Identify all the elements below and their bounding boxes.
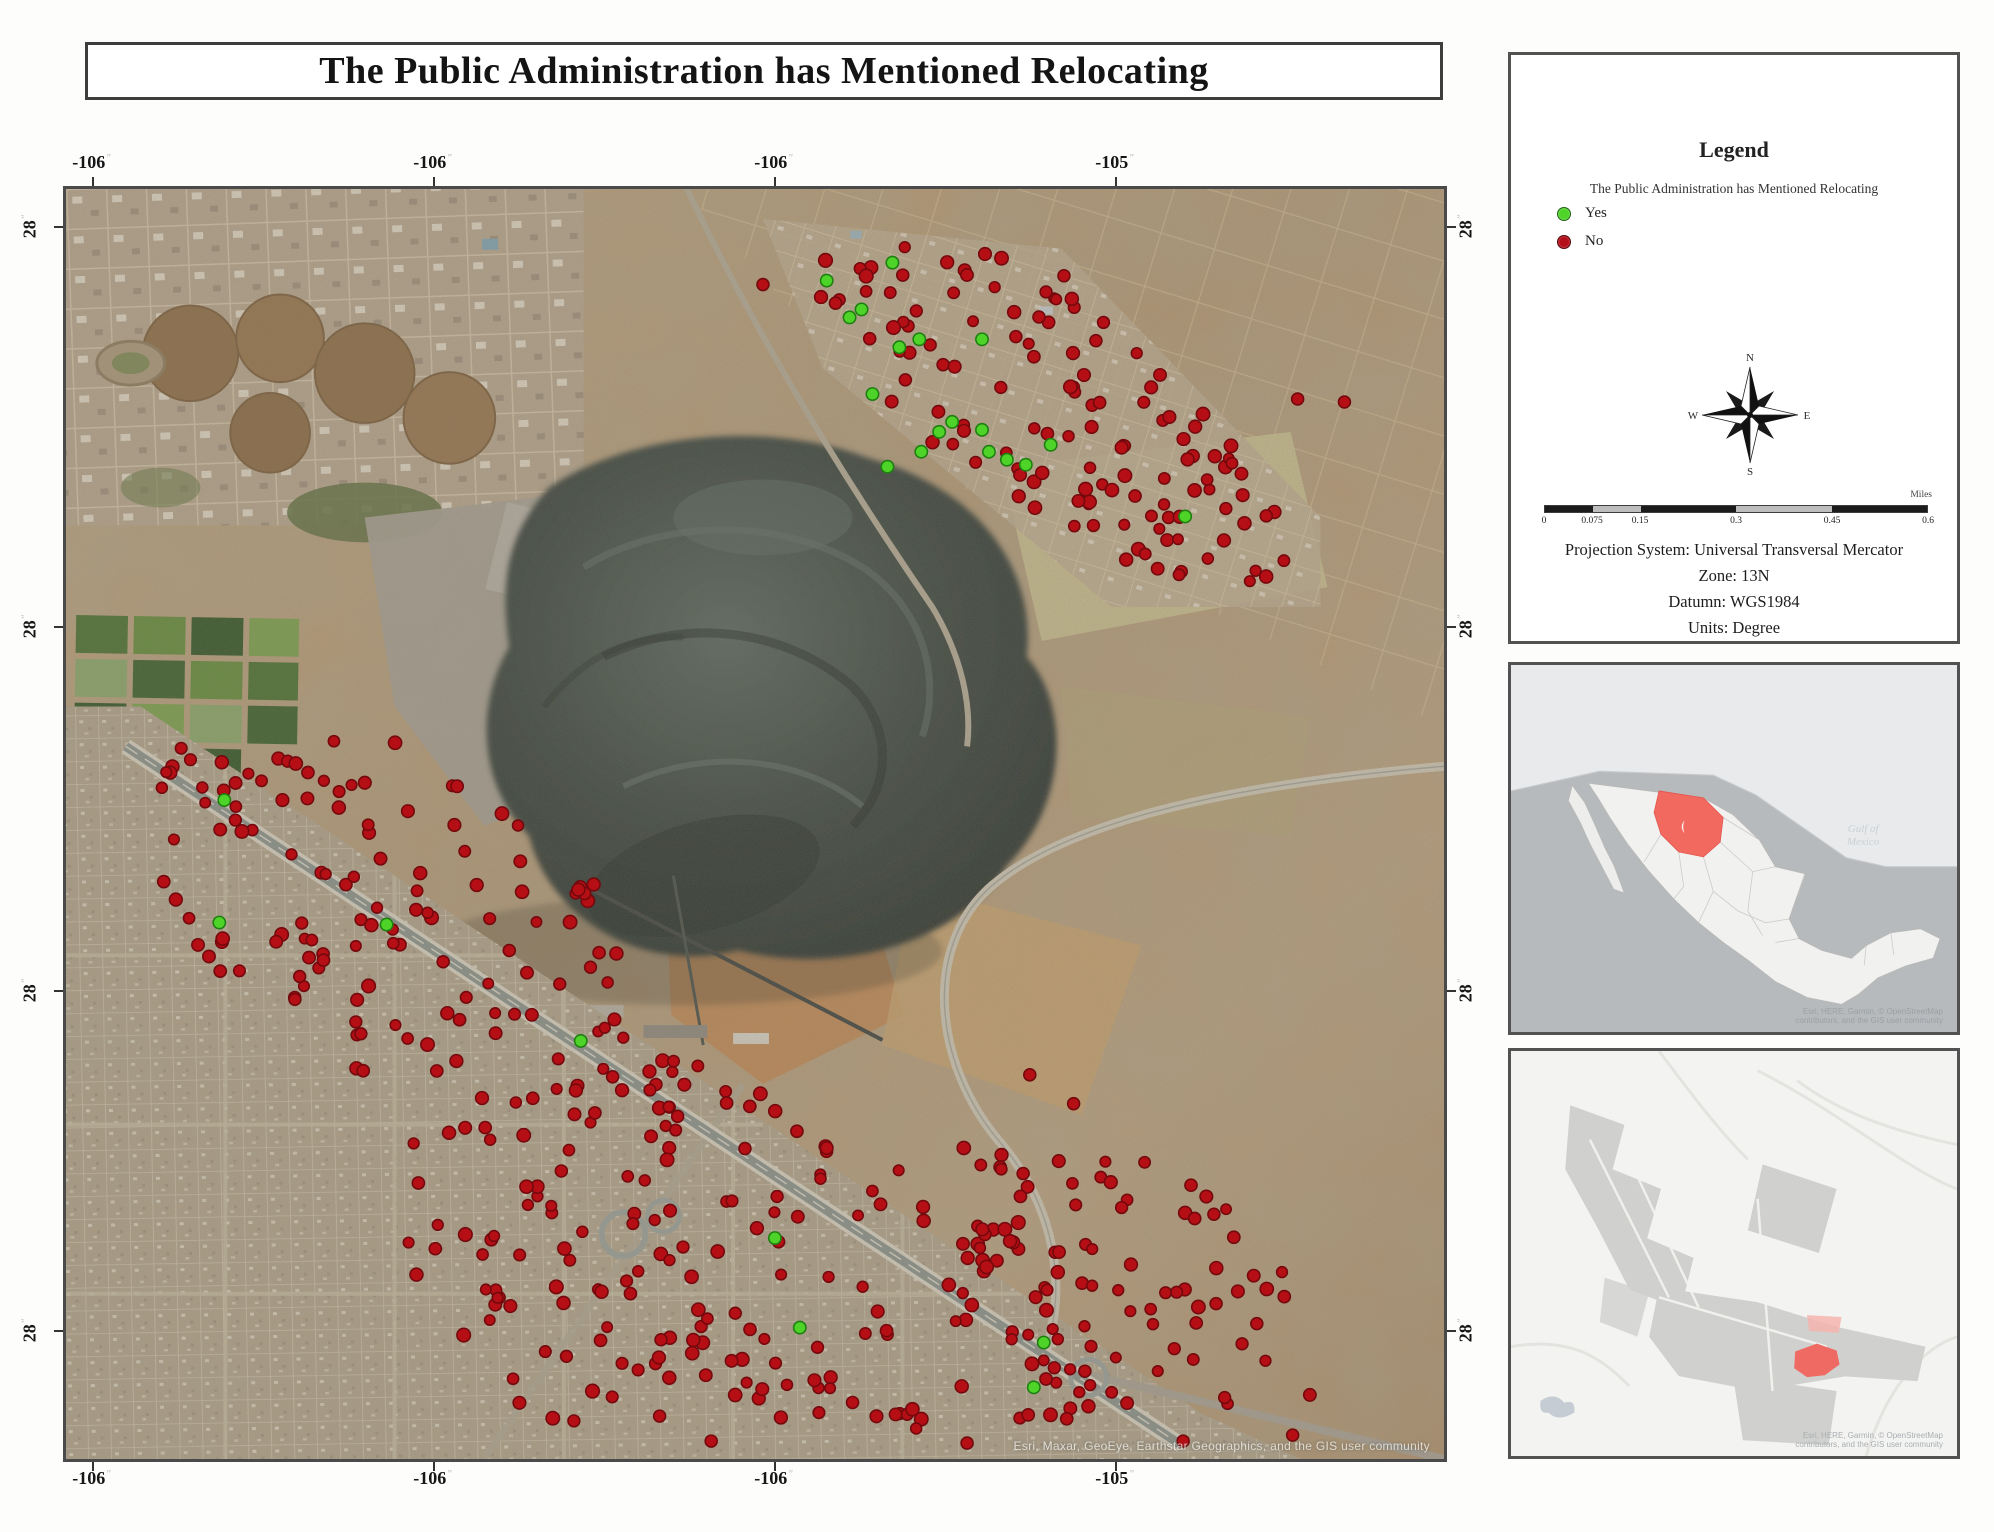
- survey-dot: [1025, 1357, 1038, 1370]
- survey-dot: [1232, 1285, 1245, 1298]
- survey-dot: [975, 1159, 986, 1170]
- longitude-label-top-1: -106″: [413, 152, 453, 173]
- survey-dot: [965, 1298, 978, 1311]
- survey-dot: [729, 1307, 741, 1319]
- survey-dot: [421, 1038, 434, 1051]
- survey-dot: [1210, 1262, 1223, 1275]
- survey-dot: [1146, 510, 1157, 521]
- survey-dot: [289, 994, 301, 1006]
- axis-tick: [92, 1462, 94, 1471]
- survey-dot: [1061, 1413, 1073, 1425]
- survey-dot: [585, 961, 597, 973]
- survey-dot: [1226, 458, 1237, 469]
- survey-dot: [1179, 510, 1191, 522]
- survey-dot: [1125, 1258, 1138, 1271]
- survey-dot: [513, 820, 524, 831]
- survey-dot: [995, 382, 1007, 394]
- legend-item-no: No: [1557, 233, 1603, 250]
- survey-dot: [374, 852, 386, 864]
- survey-dot: [513, 1396, 526, 1409]
- survey-dot: [526, 1009, 538, 1021]
- survey-dot: [791, 1125, 803, 1137]
- survey-dot: [459, 1228, 473, 1242]
- survey-dot: [843, 311, 855, 323]
- figure-title-box: The Public Administration has Mentioned …: [85, 42, 1443, 100]
- yes-dot-icon: [1557, 207, 1571, 221]
- survey-dot: [751, 1222, 764, 1235]
- survey-dot: [410, 904, 423, 917]
- svg-text:S: S: [1747, 466, 1753, 477]
- survey-dot: [627, 1218, 639, 1230]
- latitude-label-right-3: 28″: [1456, 1318, 1477, 1343]
- survey-dot: [632, 1364, 644, 1376]
- survey-dot: [319, 775, 330, 786]
- survey-dot: [1010, 331, 1022, 343]
- survey-dot: [624, 1288, 636, 1300]
- survey-dot: [1072, 495, 1084, 507]
- survey-dot: [1210, 1298, 1222, 1310]
- survey-dot: [422, 907, 433, 918]
- survey-dot: [649, 1215, 660, 1226]
- survey-dot: [357, 1065, 369, 1077]
- survey-dot: [955, 1380, 968, 1393]
- survey-dot: [523, 1200, 534, 1211]
- survey-dot: [507, 1373, 518, 1384]
- survey-dot: [203, 950, 215, 962]
- latitude-label-left-0: 28″: [20, 214, 41, 239]
- survey-dot: [776, 1269, 787, 1280]
- survey-dot: [351, 994, 364, 1007]
- survey-dot: [388, 736, 401, 749]
- survey-dot: [546, 1412, 559, 1425]
- survey-dot: [1168, 1343, 1180, 1355]
- survey-dot: [951, 1316, 961, 1326]
- survey-dot: [1145, 1304, 1156, 1315]
- survey-dot: [672, 1110, 684, 1122]
- survey-dot: [1105, 484, 1118, 497]
- survey-dot: [1236, 489, 1249, 502]
- survey-dot: [552, 1053, 564, 1065]
- survey-dot: [158, 876, 170, 888]
- survey-dot: [1088, 520, 1100, 532]
- survey-dot: [678, 1078, 691, 1091]
- scale-segment: [1593, 506, 1641, 512]
- survey-dot: [886, 256, 898, 268]
- survey-dot: [555, 1165, 567, 1177]
- survey-dot: [451, 780, 463, 792]
- survey-dot: [183, 913, 194, 924]
- survey-dot: [306, 934, 317, 945]
- survey-dot: [197, 782, 208, 793]
- survey-dot: [1100, 1156, 1111, 1167]
- survey-dot: [729, 1388, 742, 1401]
- survey-dot: [812, 1341, 824, 1353]
- axis-tick: [1115, 177, 1117, 186]
- survey-dot: [332, 801, 345, 814]
- survey-dot: [881, 461, 893, 473]
- survey-dot: [643, 1065, 656, 1078]
- survey-dot: [970, 457, 982, 469]
- survey-dot: [317, 954, 329, 966]
- projection-line: Datumn: WGS1984: [1511, 589, 1957, 615]
- survey-dot: [744, 1100, 756, 1112]
- survey-dot: [941, 256, 954, 269]
- survey-dot: [1051, 1266, 1064, 1279]
- survey-dot: [577, 1226, 588, 1237]
- longitude-label-top-2: -106″: [754, 152, 794, 173]
- survey-dot: [702, 1313, 713, 1324]
- survey-dot: [1224, 439, 1237, 452]
- survey-dot: [1292, 393, 1304, 405]
- inset-attribution: Esri, HERE, Garmin, © OpenStreetMap cont…: [1795, 1007, 1943, 1025]
- survey-dot: [403, 1237, 414, 1248]
- survey-dot: [687, 1334, 700, 1347]
- survey-dot: [668, 1056, 679, 1067]
- basemap-attribution: Esri, Maxar, GeoEye, Earthstar Geographi…: [1013, 1439, 1430, 1453]
- survey-dot: [1040, 1373, 1052, 1385]
- survey-dot: [1171, 1286, 1183, 1298]
- survey-dot: [654, 1410, 666, 1422]
- survey-dot: [1161, 534, 1173, 546]
- survey-dot: [948, 287, 959, 298]
- survey-dot: [1188, 1354, 1199, 1365]
- survey-dot: [670, 1124, 682, 1136]
- survey-dot: [516, 885, 529, 898]
- survey-dot: [350, 1016, 362, 1028]
- survey-dot: [485, 1134, 496, 1145]
- survey-dot: [871, 1305, 884, 1318]
- survey-dot: [514, 1249, 526, 1261]
- survey-dot: [414, 867, 427, 880]
- survey-dot: [540, 1346, 552, 1358]
- no-dot-icon: [1557, 235, 1571, 249]
- survey-dot: [633, 1266, 644, 1277]
- survey-dot: [606, 1391, 618, 1403]
- survey-dot: [402, 805, 415, 818]
- survey-dot: [563, 915, 576, 928]
- survey-dot: [655, 1334, 667, 1346]
- scale-segment: [1641, 506, 1737, 512]
- survey-dot: [1041, 1284, 1052, 1295]
- survey-dot: [483, 978, 493, 988]
- survey-dot: [485, 1315, 495, 1325]
- survey-dot: [820, 1142, 833, 1155]
- survey-dot: [1192, 1300, 1205, 1313]
- survey-dot: [847, 1396, 859, 1408]
- survey-dot: [607, 1071, 619, 1083]
- survey-dot: [441, 1007, 454, 1020]
- longitude-label-bottom-3: -105″: [1095, 1468, 1135, 1489]
- survey-dot: [568, 1415, 580, 1427]
- survey-dot: [521, 967, 533, 979]
- survey-dot: [443, 1126, 456, 1139]
- projection-line: Units: Degree: [1511, 615, 1957, 641]
- survey-dot: [645, 1130, 657, 1142]
- survey-dot: [1189, 1212, 1201, 1224]
- survey-dot: [958, 424, 971, 437]
- survey-dot: [301, 792, 313, 804]
- longitude-label-bottom-2: -106″: [754, 1468, 794, 1489]
- survey-dot: [1138, 397, 1150, 409]
- survey-dot: [1131, 348, 1142, 359]
- survey-dot: [1160, 1287, 1172, 1299]
- survey-dot: [685, 1270, 698, 1283]
- survey-dot: [889, 1408, 901, 1420]
- survey-dot: [1235, 468, 1247, 480]
- city-inset-art: [1511, 1051, 1957, 1456]
- survey-dot: [1119, 519, 1130, 530]
- survey-dot: [558, 1242, 571, 1255]
- survey-dot: [572, 883, 585, 896]
- survey-dot: [570, 1084, 583, 1097]
- legend-item-label: No: [1585, 233, 1603, 250]
- survey-dot: [1063, 431, 1074, 442]
- survey-dot: [1208, 1208, 1220, 1220]
- survey-dot: [1098, 316, 1110, 328]
- survey-dot: [663, 1142, 676, 1155]
- latitude-label-right-1: 28″: [1456, 614, 1477, 639]
- inset-attribution: Esri, HERE, Garmin, © OpenStreetMap cont…: [1795, 1431, 1943, 1449]
- survey-dot: [362, 979, 376, 993]
- survey-dot: [1202, 553, 1213, 564]
- survey-dot: [616, 1084, 629, 1097]
- survey-dot: [1181, 453, 1194, 466]
- survey-dot: [289, 757, 302, 770]
- survey-dot: [270, 936, 282, 948]
- latitude-label-left-1: 28″: [20, 614, 41, 639]
- axis-tick: [54, 1330, 63, 1332]
- survey-dot: [1218, 534, 1231, 547]
- survey-dot: [1190, 1317, 1202, 1329]
- latitude-label-right-2: 28″: [1456, 978, 1477, 1003]
- survey-dot: [980, 1260, 993, 1273]
- survey-dot: [781, 1379, 792, 1390]
- survey-dot: [320, 869, 331, 880]
- latitude-label-left-3: 28″: [20, 1318, 41, 1343]
- survey-dot: [948, 360, 961, 373]
- survey-dot: [663, 1371, 676, 1384]
- survey-dot: [1053, 1246, 1065, 1258]
- survey-dot: [1047, 1324, 1058, 1335]
- legend-panel: Legend The Public Administration has Men…: [1508, 52, 1960, 644]
- mexico-inset-art: [1511, 665, 1957, 1032]
- survey-dot: [1173, 569, 1184, 580]
- survey-dot: [1125, 1306, 1136, 1317]
- survey-dot: [213, 916, 225, 928]
- main-map: Esri, Maxar, GeoEye, Earthstar Geographi…: [63, 186, 1447, 1462]
- survey-dot: [968, 316, 978, 326]
- survey-dot: [815, 291, 828, 304]
- survey-dot: [946, 416, 958, 428]
- survey-dot: [1029, 423, 1040, 434]
- survey-dot: [492, 1293, 503, 1304]
- axis-tick: [433, 177, 435, 186]
- axis-tick: [1447, 626, 1456, 628]
- scale-segment: [1545, 506, 1593, 512]
- survey-dot: [1245, 576, 1256, 587]
- survey-dot: [412, 1177, 424, 1189]
- survey-dot: [1079, 482, 1093, 496]
- scale-bar-segments: [1544, 505, 1928, 513]
- survey-dot: [355, 914, 367, 926]
- projection-line: Zone: 13N: [1511, 563, 1957, 589]
- survey-dot: [756, 1383, 769, 1396]
- survey-dot: [1260, 1355, 1271, 1366]
- survey-dot: [200, 798, 210, 808]
- survey-dot: [857, 1281, 868, 1292]
- survey-dot: [957, 1288, 968, 1299]
- survey-dot: [216, 932, 229, 945]
- survey-dot: [432, 1220, 443, 1231]
- survey-dot: [503, 945, 515, 957]
- survey-dot: [1058, 270, 1070, 282]
- survey-dot: [1053, 1155, 1066, 1168]
- survey-dot: [1094, 397, 1106, 409]
- longitude-label-bottom-0: -106″: [72, 1468, 112, 1489]
- survey-dot: [1208, 450, 1221, 463]
- survey-dot: [564, 1255, 575, 1266]
- survey-dot: [1020, 459, 1032, 471]
- survey-dot: [622, 1171, 633, 1182]
- survey-dot: [594, 1334, 606, 1346]
- survey-dot: [757, 279, 769, 291]
- city-inset-map: Esri, HERE, Garmin, © OpenStreetMap cont…: [1508, 1048, 1960, 1459]
- survey-dot: [175, 742, 187, 754]
- scale-segment: [1832, 506, 1928, 512]
- svg-text:W: W: [1688, 410, 1699, 422]
- axis-tick: [1447, 226, 1456, 228]
- survey-dot: [276, 794, 289, 807]
- survey-dot: [618, 1032, 629, 1043]
- survey-dot: [759, 1334, 770, 1345]
- survey-dot: [527, 1092, 539, 1104]
- survey-dot: [860, 1328, 871, 1339]
- survey-dot: [294, 971, 306, 983]
- survey-dot: [910, 305, 922, 317]
- survey-dot: [1145, 381, 1158, 394]
- survey-dot: [229, 777, 241, 789]
- axis-tick: [1447, 990, 1456, 992]
- survey-dot: [296, 917, 308, 929]
- survey-dot: [1040, 286, 1052, 298]
- survey-dot: [726, 1195, 738, 1207]
- survey-dot: [1140, 548, 1151, 559]
- survey-dot: [1051, 294, 1062, 305]
- survey-dot: [823, 1271, 834, 1282]
- survey-dot: [808, 1374, 821, 1387]
- survey-dot: [639, 1175, 650, 1186]
- survey-dot: [859, 269, 873, 283]
- survey-dot: [1219, 1392, 1231, 1404]
- survey-dot: [720, 1086, 731, 1097]
- survey-dot: [495, 807, 508, 820]
- survey-dot: [302, 766, 314, 778]
- survey-dot: [1045, 439, 1057, 451]
- survey-dot: [821, 274, 833, 286]
- survey-dot: [1085, 462, 1096, 473]
- survey-dot: [721, 1097, 733, 1109]
- survey-dot: [1004, 1235, 1017, 1248]
- survey-dot: [897, 269, 909, 281]
- survey-dot: [700, 1369, 712, 1381]
- survey-dot: [509, 1008, 521, 1020]
- legend-title: Legend: [1511, 137, 1957, 163]
- survey-dot: [557, 1296, 570, 1309]
- survey-dot: [996, 1163, 1007, 1174]
- survey-dot: [917, 1201, 930, 1214]
- survey-dot: [1338, 396, 1350, 408]
- survey-dot: [1085, 1341, 1097, 1353]
- survey-dot: [351, 941, 362, 952]
- survey-dot: [621, 1275, 633, 1287]
- survey-dot: [514, 855, 526, 867]
- axis-tick: [1115, 1462, 1117, 1471]
- survey-dot: [1228, 1231, 1240, 1243]
- survey-dot: [1036, 466, 1049, 479]
- survey-dot: [711, 1245, 724, 1258]
- survey-dot: [1260, 1282, 1273, 1295]
- scale-bar-labels: 0 0.075 0.15 0.3 0.45 0.6: [1544, 516, 1928, 530]
- survey-dot: [989, 282, 1000, 293]
- svg-text:N: N: [1746, 352, 1754, 364]
- survey-dot: [1104, 1176, 1117, 1189]
- survey-dot: [218, 794, 230, 806]
- survey-dot: [1022, 1409, 1034, 1421]
- survey-dot: [459, 1121, 472, 1134]
- survey-dot: [1159, 473, 1170, 484]
- survey-dot: [867, 1185, 878, 1196]
- survey-dot: [829, 297, 841, 309]
- survey-dot: [893, 341, 905, 353]
- survey-dot: [1085, 421, 1098, 434]
- survey-dot: [660, 1153, 673, 1166]
- legend-item-label: Yes: [1585, 205, 1607, 222]
- survey-dot: [355, 1028, 367, 1040]
- survey-dot: [1023, 1329, 1034, 1340]
- survey-dot: [504, 1300, 517, 1313]
- survey-dot: [1163, 411, 1176, 424]
- survey-dot: [1121, 1397, 1133, 1409]
- survey-dot: [1200, 1190, 1213, 1203]
- survey-dot: [1067, 347, 1080, 360]
- survey-dot: [1065, 292, 1078, 305]
- survey-dot: [454, 1014, 466, 1026]
- survey-dot: [957, 1141, 970, 1154]
- survey-dot: [450, 1055, 463, 1068]
- latitude-label-left-2: 28″: [20, 978, 41, 1003]
- survey-dot: [561, 1350, 573, 1362]
- survey-dot: [161, 767, 172, 778]
- survey-dot: [1116, 1202, 1128, 1214]
- survey-dot: [243, 768, 254, 779]
- survey-dot: [1033, 311, 1045, 323]
- survey-dot: [595, 1285, 608, 1298]
- survey-dot: [899, 242, 910, 253]
- survey-dot: [185, 754, 197, 766]
- survey-dot: [770, 1357, 782, 1369]
- survey-dot: [1106, 1387, 1117, 1398]
- survey-dot: [1065, 1364, 1076, 1375]
- survey-dot: [917, 1214, 930, 1227]
- survey-dot: [775, 1411, 788, 1424]
- survey-dot: [610, 947, 623, 960]
- survey-dot: [214, 965, 226, 977]
- survey-dot: [942, 1278, 955, 1291]
- survey-dot: [1087, 1244, 1098, 1255]
- survey-dot: [1079, 1365, 1091, 1377]
- survey-dot: [947, 439, 958, 450]
- survey-dot: [1068, 1098, 1080, 1110]
